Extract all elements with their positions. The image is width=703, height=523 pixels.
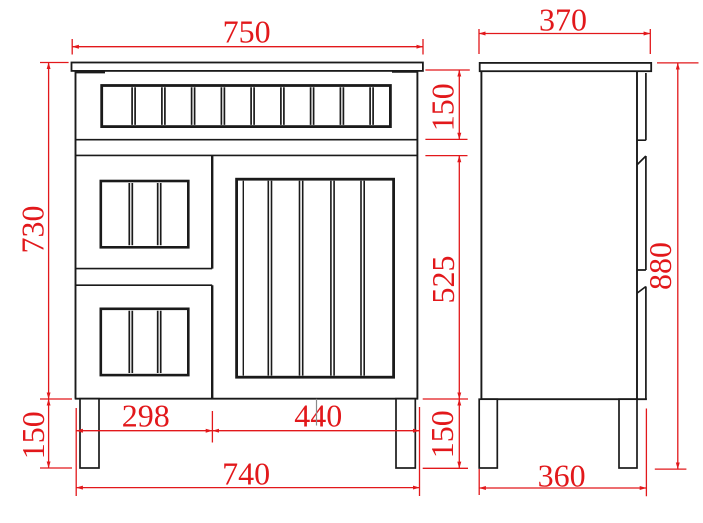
- svg-text:750: 750: [223, 14, 271, 50]
- svg-text:525: 525: [425, 256, 461, 304]
- svg-text:150: 150: [424, 410, 460, 458]
- svg-text:360: 360: [538, 457, 586, 493]
- svg-text:880: 880: [642, 242, 678, 290]
- svg-text:150: 150: [15, 411, 51, 459]
- svg-text:370: 370: [539, 1, 587, 37]
- svg-text:740: 740: [222, 456, 270, 492]
- svg-text:440: 440: [294, 398, 342, 434]
- svg-text:730: 730: [15, 206, 51, 254]
- svg-text:150: 150: [425, 83, 461, 131]
- svg-text:298: 298: [122, 398, 170, 434]
